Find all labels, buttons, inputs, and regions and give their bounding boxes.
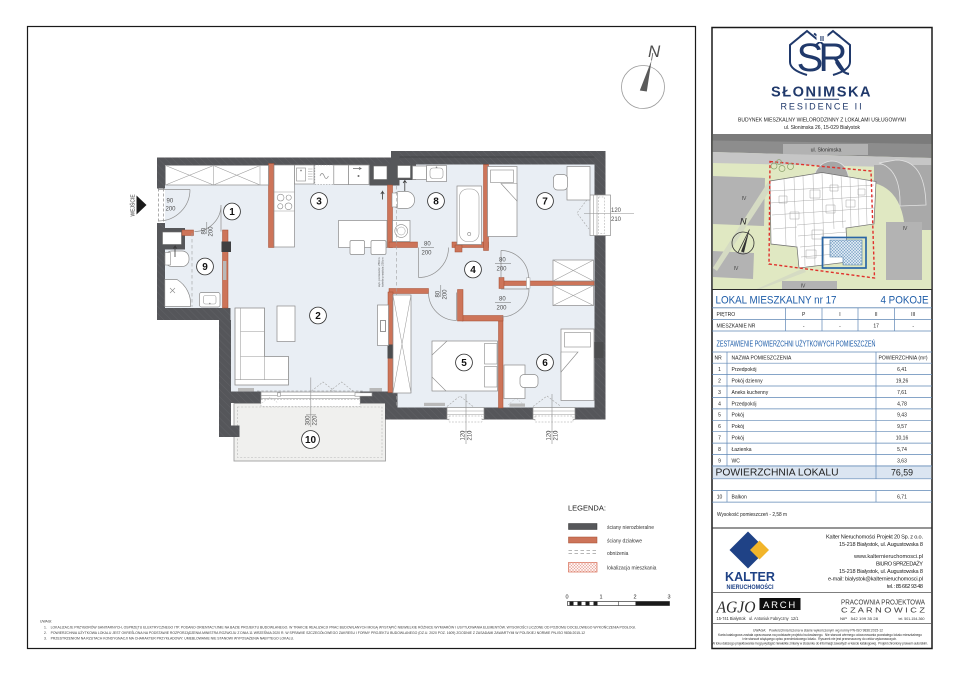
svg-text:3: 3 xyxy=(718,390,721,396)
svg-text:4 POKOJE: 4 POKOJE xyxy=(881,295,929,307)
svg-text:200: 200 xyxy=(166,207,177,213)
svg-text:www.kalternieruchomosci.pl: www.kalternieruchomosci.pl xyxy=(853,554,923,560)
svg-text:N: N xyxy=(648,42,661,61)
svg-text:4: 4 xyxy=(470,265,476,276)
svg-text:Pokój dzienny: Pokój dzienny xyxy=(732,378,764,384)
svg-text:III: III xyxy=(911,312,915,318)
svg-text:200: 200 xyxy=(497,267,508,273)
svg-text:17: 17 xyxy=(873,324,879,330)
svg-text:210: 210 xyxy=(554,430,560,441)
svg-text:90: 90 xyxy=(167,199,174,205)
svg-text:BIURO SPRZEDAŻY: BIURO SPRZEDAŻY xyxy=(876,561,923,568)
svg-text:120: 120 xyxy=(547,430,553,441)
svg-text:Pokój: Pokój xyxy=(732,413,745,419)
svg-text:80: 80 xyxy=(499,297,506,303)
svg-text:1: 1 xyxy=(229,207,235,218)
svg-text:W toku dalszego projektowania: W toku dalszego projektowania mogą wystą… xyxy=(712,642,928,646)
svg-text:i nie stanowi wiążącego opisu: i nie stanowi wiążącego opisu przedmioto… xyxy=(742,637,897,641)
svg-text:210: 210 xyxy=(468,430,474,441)
svg-text:SŁONIMSKA: SŁONIMSKA xyxy=(771,85,872,101)
svg-text:300: 300 xyxy=(305,415,311,426)
svg-text:LEGENDA:: LEGENDA: xyxy=(568,504,606,513)
svg-text:5: 5 xyxy=(718,413,721,419)
svg-text:I: I xyxy=(839,312,840,318)
svg-text:Pokój: Pokój xyxy=(732,424,745,430)
svg-text:2: 2 xyxy=(718,378,721,384)
svg-text:UWAGA: Powierzchnia liczona: UWAGA: Powierzchnia liczona w stanie wyk… xyxy=(753,629,883,633)
svg-text:UWAGI:: UWAGI: xyxy=(40,620,52,624)
svg-text:N: N xyxy=(740,217,747,227)
svg-text:6,71: 6,71 xyxy=(897,494,907,500)
svg-text:PIĘTRO: PIĘTRO xyxy=(717,312,736,318)
svg-text:9,43: 9,43 xyxy=(897,413,907,419)
svg-text:IV: IV xyxy=(801,284,806,290)
svg-text:120: 120 xyxy=(461,430,467,441)
svg-text:7: 7 xyxy=(718,436,721,442)
svg-text:obniżenia: obniżenia xyxy=(607,551,629,557)
svg-text:5,74: 5,74 xyxy=(897,447,907,453)
svg-text:210: 210 xyxy=(611,217,622,223)
svg-text:7,61: 7,61 xyxy=(897,390,907,396)
svg-text:80: 80 xyxy=(499,258,506,264)
svg-text:10: 10 xyxy=(717,494,723,500)
svg-text:200: 200 xyxy=(209,226,215,237)
svg-text:2: 2 xyxy=(634,595,637,601)
svg-text:3,63: 3,63 xyxy=(897,458,907,464)
svg-text:76,59: 76,59 xyxy=(891,468,913,478)
svg-text:Przedpokój: Przedpokój xyxy=(732,401,757,407)
svg-text:e-mail: bialystok@kalternieruc: e-mail: bialystok@kalternieruchomosci.pl xyxy=(828,577,923,583)
svg-text:220: 220 xyxy=(313,415,319,426)
svg-text:6: 6 xyxy=(718,424,721,430)
svg-text:15-218 Białystok, ul. Augustow: 15-218 Białystok, ul. Augustowska 8 xyxy=(839,542,923,548)
svg-text:4,78: 4,78 xyxy=(897,401,907,407)
svg-text:8: 8 xyxy=(433,197,439,208)
svg-text:świetle przejścia 230cm: świetle przejścia 230cm xyxy=(381,257,385,287)
svg-text:BUDYNEK MIESZKALNY WIELORODZIN: BUDYNEK MIESZKALNY WIELORODZINNY Z LOKAL… xyxy=(738,118,906,124)
svg-text:200: 200 xyxy=(443,289,449,300)
svg-text:tel. 501-154-360: tel. 501-154-360 xyxy=(899,616,926,621)
svg-text:80: 80 xyxy=(202,227,208,234)
svg-text:AGJO: AGJO xyxy=(716,598,756,617)
svg-text:Przedpokój: Przedpokój xyxy=(732,367,757,373)
svg-text:NIERUCHOMOŚCI: NIERUCHOMOŚCI xyxy=(727,584,774,591)
svg-text:MIESZKANIE NR: MIESZKANIE NR xyxy=(717,324,756,330)
svg-text:9: 9 xyxy=(718,458,721,464)
svg-text:NR: NR xyxy=(715,356,723,362)
svg-text:7: 7 xyxy=(542,197,548,208)
svg-text:ściany działowe: ściany działowe xyxy=(607,539,642,545)
svg-text:200: 200 xyxy=(422,251,433,257)
svg-text:RESIDENCE II: RESIDENCE II xyxy=(781,102,864,113)
svg-text:10: 10 xyxy=(305,435,317,446)
svg-text:Aneks kuchenny: Aneks kuchenny xyxy=(732,390,769,396)
svg-text:3: 3 xyxy=(668,595,671,601)
svg-text:6,41: 6,41 xyxy=(897,367,907,373)
svg-text:IV: IV xyxy=(734,266,739,272)
svg-text:POWIERZCHNIA LOKALU: POWIERZCHNIA LOKALU xyxy=(716,468,839,479)
svg-text:5: 5 xyxy=(461,358,467,369)
svg-text:0: 0 xyxy=(566,595,569,601)
svg-text:POWIERZCHNIA (m²): POWIERZCHNIA (m²) xyxy=(879,356,928,362)
svg-text:R: R xyxy=(819,36,848,80)
svg-text:NAZWA POMIESZCZENIA: NAZWA POMIESZCZENIA xyxy=(732,356,792,362)
svg-text:8: 8 xyxy=(718,447,721,453)
svg-text:1: 1 xyxy=(600,595,603,601)
svg-text:NIP 542 199 35 28: NIP 542 199 35 28 xyxy=(840,616,879,621)
svg-text:19,26: 19,26 xyxy=(896,378,909,384)
svg-text:KALTER: KALTER xyxy=(725,569,776,584)
svg-text:Wysokość pomieszczeń - 2,58 m: Wysokość pomieszczeń - 2,58 m xyxy=(717,512,787,518)
svg-text:ul. Słonimska: ul. Słonimska xyxy=(811,148,842,154)
svg-text:C Z A R N O W I C Z: C Z A R N O W I C Z xyxy=(841,606,926,615)
svg-text:ul. Słonimska 26, 15-029 Biały: ul. Słonimska 26, 15-029 Białystok xyxy=(784,125,860,131)
svg-text:Łazienka: Łazienka xyxy=(732,447,752,453)
svg-text:WEJŚCIE: WEJŚCIE xyxy=(129,194,137,217)
svg-text:Pokój: Pokój xyxy=(732,436,745,442)
svg-text:120: 120 xyxy=(611,208,622,214)
svg-text:1. LOKALIZACJE PRZYBORÓW SA: 1. LOKALIZACJE PRZYBORÓW SANITARNYCH, OS… xyxy=(44,625,636,630)
svg-text:ZESTAWIENIE POWIERZCHNI UŻYTKO: ZESTAWIENIE POWIERZCHNI UŻYTKOWYCH POMIE… xyxy=(717,340,876,349)
svg-text:15-741 Białystok ul. Antoniu: 15-741 Białystok ul. Antoniuk Fabryczny … xyxy=(717,616,800,621)
svg-text:IV: IV xyxy=(742,196,747,202)
svg-text:9: 9 xyxy=(202,262,208,273)
svg-text:3. PRZESTRZENIOM NA RZUTACH: 3. PRZESTRZENIOM NA RZUTACH KONDYGNACJI … xyxy=(44,635,294,640)
svg-text:lokalizacja mieszkania: lokalizacja mieszkania xyxy=(607,566,657,572)
svg-text:II: II xyxy=(875,312,878,318)
svg-text:6: 6 xyxy=(542,358,548,369)
svg-text:1: 1 xyxy=(718,367,721,373)
svg-text:10,16: 10,16 xyxy=(896,436,909,442)
svg-text:80: 80 xyxy=(436,290,442,297)
svg-text:15-218 Białystok, ul. Augustow: 15-218 Białystok, ul. Augustowska 8 xyxy=(839,569,923,575)
svg-text:ARCH: ARCH xyxy=(763,600,797,611)
svg-text:ściany nierozbieralne: ściany nierozbieralne xyxy=(607,525,654,531)
svg-text:LOKAL MIESZKALNY nr 17: LOKAL MIESZKALNY nr 17 xyxy=(716,295,837,307)
svg-text:Balkon: Balkon xyxy=(732,494,748,500)
svg-text:9,57: 9,57 xyxy=(897,424,907,430)
svg-text:IV: IV xyxy=(903,226,908,232)
svg-text:2: 2 xyxy=(315,311,321,322)
svg-text:80: 80 xyxy=(424,242,431,248)
svg-text:200: 200 xyxy=(497,306,508,312)
svg-text:WC: WC xyxy=(732,458,741,464)
svg-text:4: 4 xyxy=(718,401,721,407)
svg-text:tel. : 85 662 93 48: tel. : 85 662 93 48 xyxy=(887,584,923,590)
svg-text:Kalter Nieruchomości Projekt 2: Kalter Nieruchomości Projekt 20 Sp. z o.… xyxy=(826,535,923,541)
svg-text:3: 3 xyxy=(316,197,322,208)
svg-text:2. POWIERZCHNIA UŻYTKOWA LO: 2. POWIERZCHNIA UŻYTKOWA LOKALU JEST OKR… xyxy=(44,630,585,635)
